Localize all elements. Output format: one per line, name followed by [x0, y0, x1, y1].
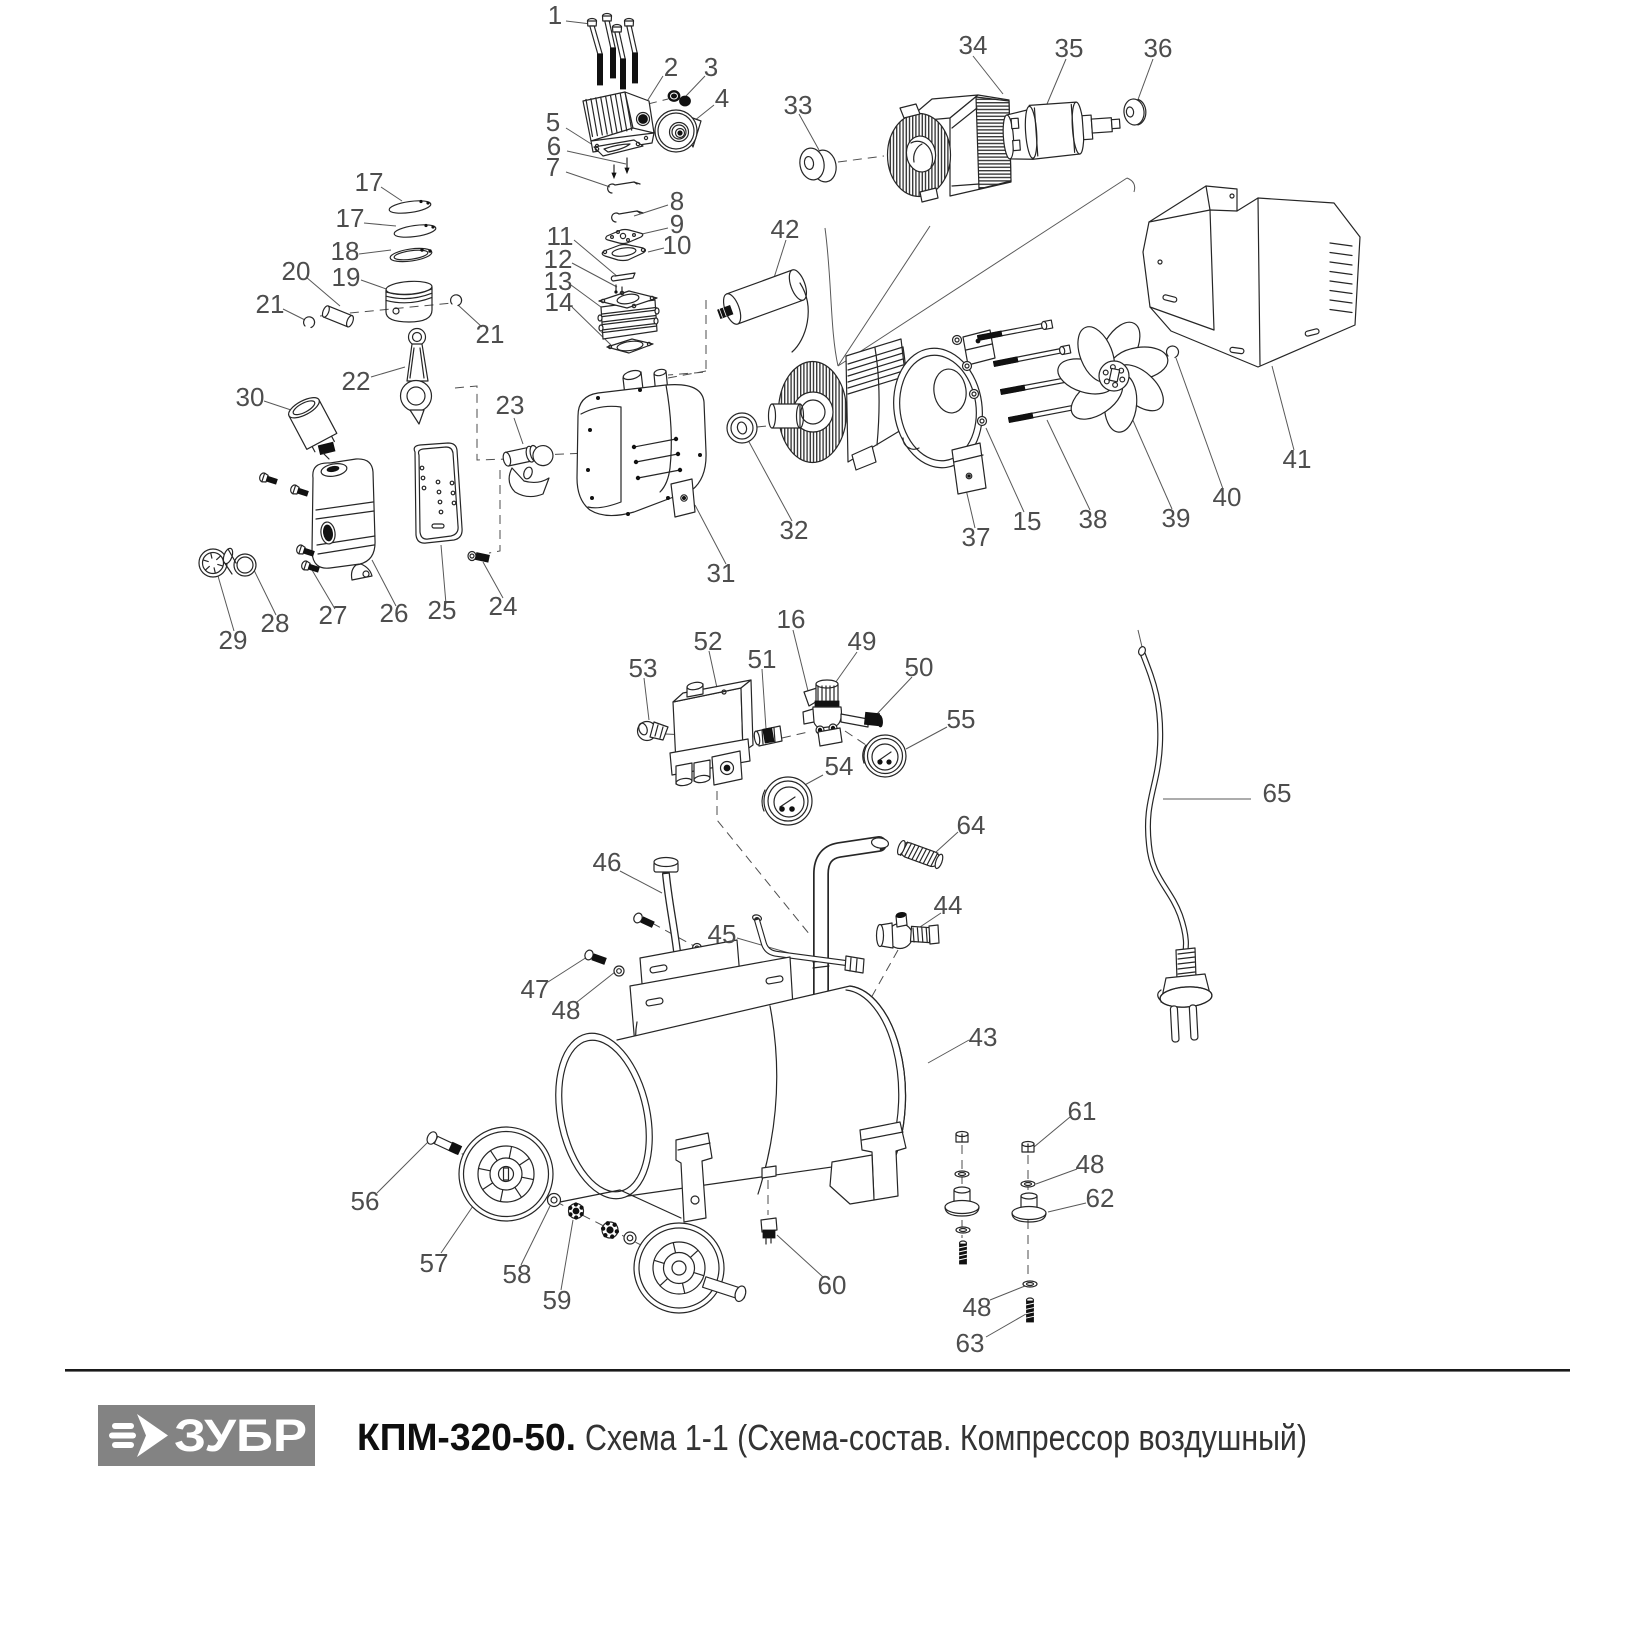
svg-text:20: 20	[282, 256, 311, 286]
svg-text:50: 50	[905, 652, 934, 682]
svg-text:45: 45	[708, 919, 737, 949]
svg-text:65: 65	[1263, 778, 1292, 808]
svg-text:60: 60	[818, 1270, 847, 1300]
svg-text:16: 16	[777, 604, 806, 634]
svg-text:1: 1	[548, 0, 562, 30]
svg-text:38: 38	[1079, 504, 1108, 534]
svg-text:17: 17	[355, 167, 384, 197]
svg-text:21: 21	[256, 289, 285, 319]
svg-text:30: 30	[236, 382, 265, 412]
svg-text:24: 24	[489, 591, 518, 621]
svg-text:54: 54	[825, 751, 854, 781]
svg-text:63: 63	[956, 1328, 985, 1358]
svg-text:22: 22	[342, 366, 371, 396]
svg-text:59: 59	[543, 1285, 572, 1315]
svg-text:26: 26	[380, 598, 409, 628]
svg-text:10: 10	[663, 230, 692, 260]
svg-text:27: 27	[319, 600, 348, 630]
svg-text:64: 64	[957, 810, 986, 840]
svg-text:32: 32	[780, 515, 809, 545]
svg-text:19: 19	[332, 262, 361, 292]
svg-text:40: 40	[1213, 482, 1242, 512]
svg-text:4: 4	[715, 83, 729, 113]
svg-text:34: 34	[959, 30, 988, 60]
svg-text:48: 48	[552, 995, 581, 1025]
svg-text:52: 52	[694, 626, 723, 656]
svg-text:41: 41	[1283, 444, 1312, 474]
svg-text:29: 29	[219, 625, 248, 655]
svg-text:51: 51	[748, 644, 777, 674]
svg-text:46: 46	[593, 847, 622, 877]
svg-text:53: 53	[629, 653, 658, 683]
svg-text:31: 31	[707, 558, 736, 588]
svg-text:57: 57	[420, 1248, 449, 1278]
svg-text:3: 3	[704, 52, 718, 82]
svg-text:25: 25	[428, 595, 457, 625]
svg-text:48: 48	[963, 1292, 992, 1322]
svg-text:23: 23	[496, 390, 525, 420]
svg-text:7: 7	[546, 152, 560, 182]
svg-text:28: 28	[261, 608, 290, 638]
svg-text:КПМ-320-50.Схема 1-1 (Схема-со: КПМ-320-50.Схема 1-1 (Схема-состав. Комп…	[357, 1417, 1307, 1459]
svg-text:14: 14	[545, 287, 574, 317]
svg-text:44: 44	[934, 890, 963, 920]
svg-text:33: 33	[784, 90, 813, 120]
svg-text:2: 2	[664, 52, 678, 82]
svg-text:ЗУБР: ЗУБР	[174, 1410, 307, 1461]
svg-text:36: 36	[1144, 33, 1173, 63]
svg-text:55: 55	[947, 704, 976, 734]
svg-text:62: 62	[1086, 1183, 1115, 1213]
svg-text:42: 42	[771, 214, 800, 244]
svg-text:56: 56	[351, 1186, 380, 1216]
svg-text:39: 39	[1162, 503, 1191, 533]
svg-text:17: 17	[336, 203, 365, 233]
svg-text:21: 21	[476, 319, 505, 349]
svg-text:15: 15	[1013, 506, 1042, 536]
svg-text:37: 37	[962, 522, 991, 552]
svg-text:47: 47	[521, 974, 550, 1004]
svg-text:58: 58	[503, 1259, 532, 1289]
svg-text:48: 48	[1076, 1149, 1105, 1179]
svg-text:49: 49	[848, 626, 877, 656]
svg-text:61: 61	[1068, 1096, 1097, 1126]
svg-text:43: 43	[969, 1022, 998, 1052]
svg-text:35: 35	[1055, 33, 1084, 63]
